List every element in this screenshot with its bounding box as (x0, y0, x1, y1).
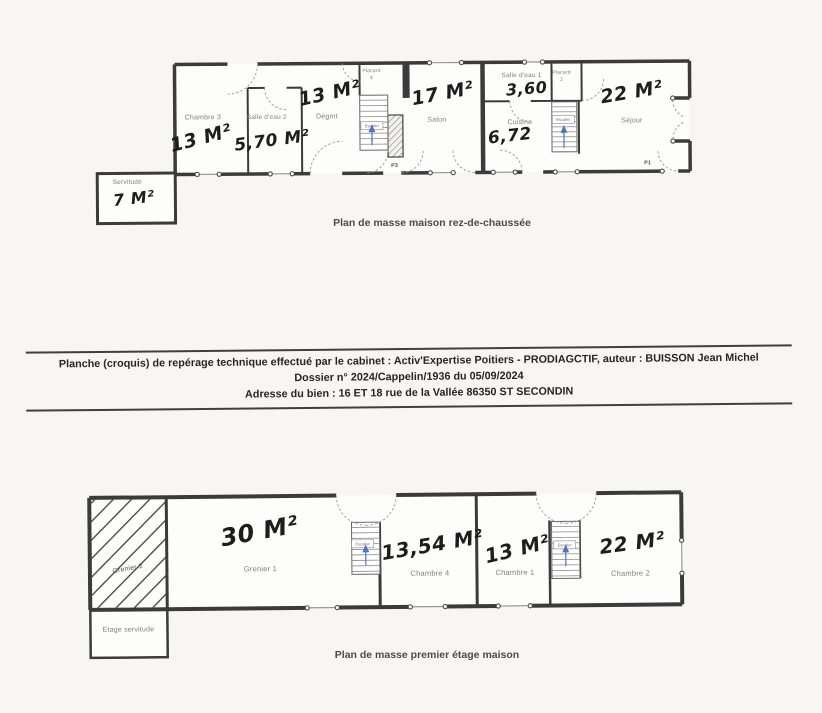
label-placard-4: Placard (351, 69, 391, 75)
door-label-p1: P1 (644, 160, 651, 166)
stair-label-escalier-1: Escalier (550, 117, 576, 122)
first-floor-plan: Grenier 2 Grenier 1 Chambre 4 Chambre 1 … (84, 485, 706, 671)
grenier-2-hatch (91, 499, 167, 608)
stair-num-2: 2 (359, 137, 385, 142)
ground-floor-plan: Chambre 3 Salle d'eau 2 Dégmt Placard 4 … (84, 48, 705, 237)
caption-ground-floor: Plan de masse maison rez-de-chaussée (282, 217, 582, 229)
label-chambre-1: Chambre 1 (475, 568, 555, 577)
caption-first-floor: Plan de masse premier étage maison (277, 649, 577, 661)
label-chambre-4: Chambre 4 (390, 569, 470, 578)
report-info-block: Planche (croquis) de repérage technique … (26, 344, 793, 411)
label-degagement: Dégmt (287, 113, 367, 122)
label-etage-servitude: Etage servitude (88, 626, 168, 635)
stair-label-right: Escalier (552, 542, 578, 547)
label-sejour: Séjour (592, 117, 672, 126)
stair-label-escalier-2: Escalier (359, 123, 385, 128)
stair-label-left: Escalier (350, 541, 376, 546)
scanned-floor-plan-document: Chambre 3 Salle d'eau 2 Dégmt Placard 4 … (0, 0, 822, 713)
staircase-left (351, 522, 379, 574)
label-salon: Salon (397, 116, 477, 125)
label-chambre-2: Chambre 2 (588, 569, 673, 578)
door-label-p3: P3 (391, 163, 398, 169)
label-grenier-1: Grenier 1 (218, 565, 303, 574)
stair-num-1: 1 (550, 130, 576, 135)
